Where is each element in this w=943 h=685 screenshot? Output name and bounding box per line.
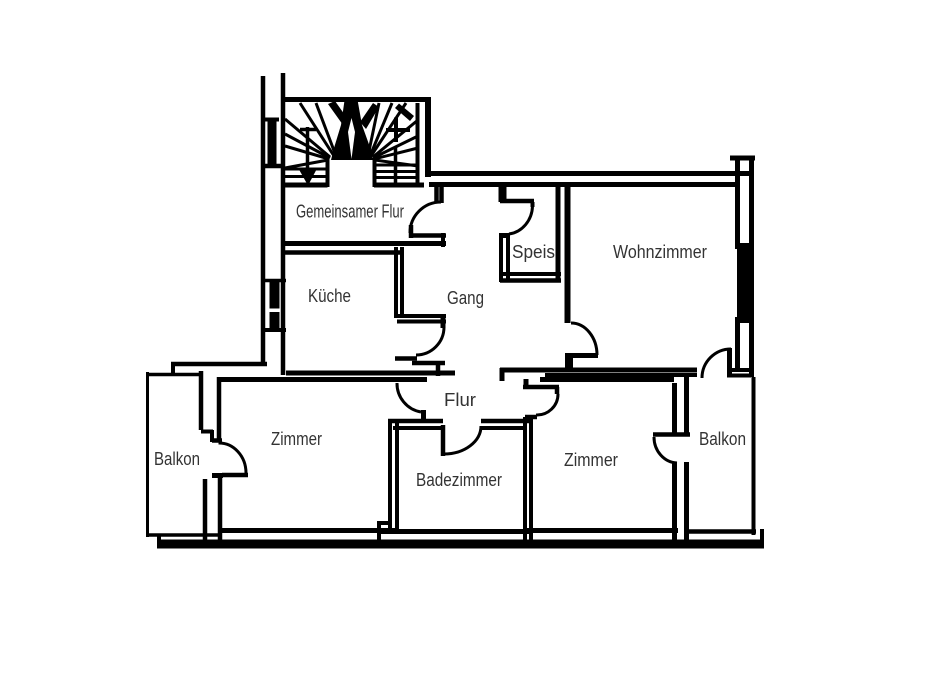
svg-text:Zimmer: Zimmer — [271, 429, 322, 449]
svg-text:Flur: Flur — [444, 390, 476, 410]
svg-text:Gemeinsamer Flur: Gemeinsamer Flur — [296, 202, 404, 222]
svg-text:Gang: Gang — [447, 288, 484, 308]
svg-text:Badezimmer: Badezimmer — [416, 470, 502, 490]
svg-text:Wohnzimmer: Wohnzimmer — [613, 242, 707, 262]
svg-text:Zimmer: Zimmer — [564, 450, 618, 470]
svg-text:Balkon: Balkon — [699, 429, 746, 449]
svg-text:Balkon: Balkon — [154, 449, 200, 469]
svg-text:Küche: Küche — [308, 286, 351, 306]
svg-text:Speis: Speis — [512, 242, 555, 262]
